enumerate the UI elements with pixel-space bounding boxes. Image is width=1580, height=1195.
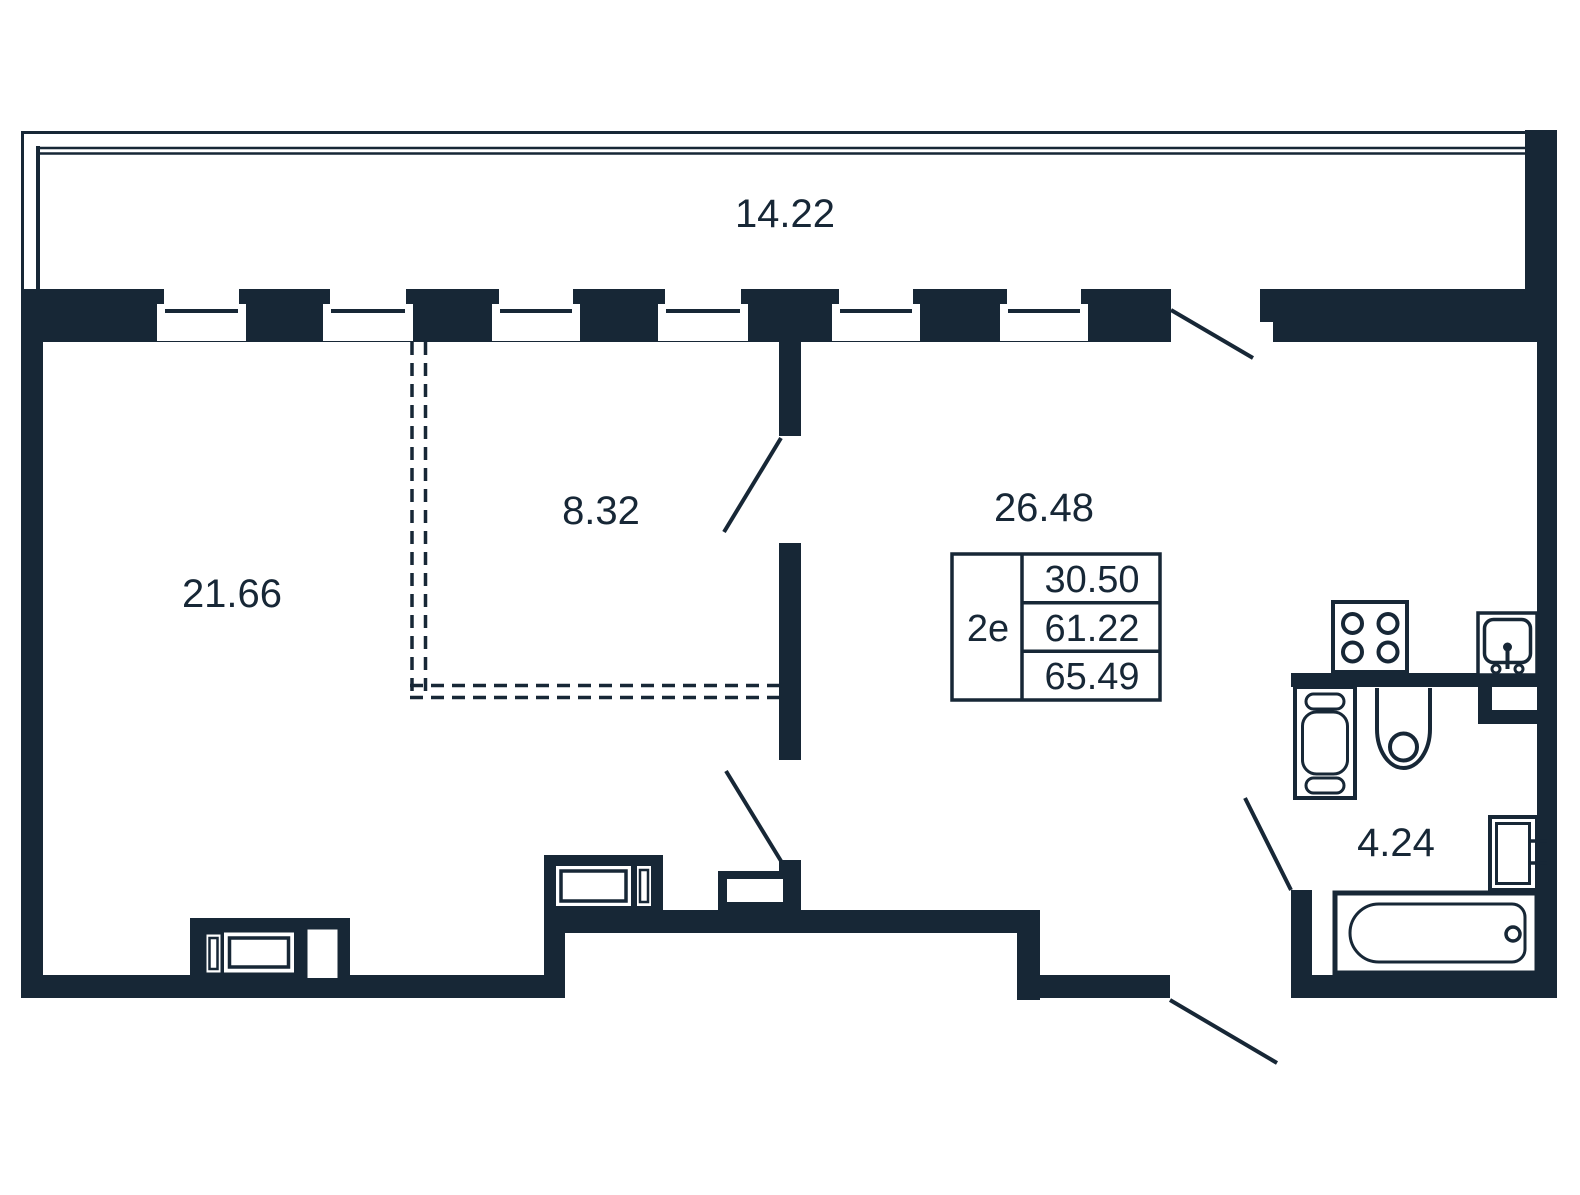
room-labels: 21.66 8.32 26.48 4.24: [182, 486, 1435, 865]
bathroom-area-label: 4.24: [1357, 821, 1435, 865]
entrance-door-swing: [1170, 1000, 1277, 1063]
room-door-swing-upper: [724, 438, 781, 532]
walls: [21, 130, 1557, 1000]
washbasin-icon: [1490, 817, 1547, 890]
unit-type-label: 2е: [967, 608, 1009, 650]
partition-wall-upper: [779, 342, 801, 436]
living-area-label: 21.66: [182, 572, 282, 616]
bathroom-door-swing: [1245, 798, 1291, 890]
window-6: [1000, 289, 1088, 341]
room-door-swing-lower: [726, 771, 781, 861]
window-4: [658, 289, 748, 341]
unit-info-table: 2е 30.50 61.22 65.49: [952, 554, 1160, 700]
table-value-3: 65.49: [1044, 656, 1139, 698]
balcony-door-swing: [1171, 310, 1253, 358]
toilet-icon: [1377, 688, 1430, 768]
partition-wall-mid: [779, 543, 801, 760]
window-5: [832, 289, 920, 341]
kitchen-living-area-label: 26.48: [994, 486, 1094, 530]
balcony-area-label: 14.22: [735, 192, 835, 236]
window-3: [492, 289, 580, 341]
balcony-door-post: [1260, 289, 1273, 322]
bathroom-wall-bottom: [1291, 975, 1557, 998]
kitchen-sink-icon: [1478, 613, 1537, 675]
stove-icon: [1333, 602, 1407, 672]
floor-plan: 14.22: [0, 0, 1580, 1195]
balcony: 14.22: [21, 131, 1541, 291]
table-value-2: 61.22: [1044, 608, 1139, 650]
washing-machine-icon: [1295, 687, 1355, 798]
duct-wall-horizontal: [1492, 710, 1537, 724]
bottom-wall-left: [21, 975, 565, 998]
vent-duct-inner: [727, 879, 783, 902]
window-1: [157, 289, 246, 341]
table-value-1: 30.50: [1044, 559, 1139, 601]
window-2: [323, 289, 413, 341]
dresser-icon: [190, 918, 350, 978]
outer-wall-right: [1537, 342, 1557, 998]
outer-wall-right-top: [1525, 130, 1557, 342]
raised-wall: [565, 910, 1039, 933]
window-wall-right: [1273, 289, 1557, 342]
floor-plan-page: 14.22: [0, 0, 1580, 1195]
bottom-wall-step-left: [544, 910, 565, 998]
outer-wall-left: [21, 342, 43, 998]
cabinet-icon: [544, 855, 663, 912]
bathtub-icon: [1335, 893, 1537, 973]
duct-wall-vertical: [1478, 687, 1492, 724]
bottom-wall-mid: [1017, 975, 1170, 998]
hall-area-label: 8.32: [562, 489, 640, 533]
